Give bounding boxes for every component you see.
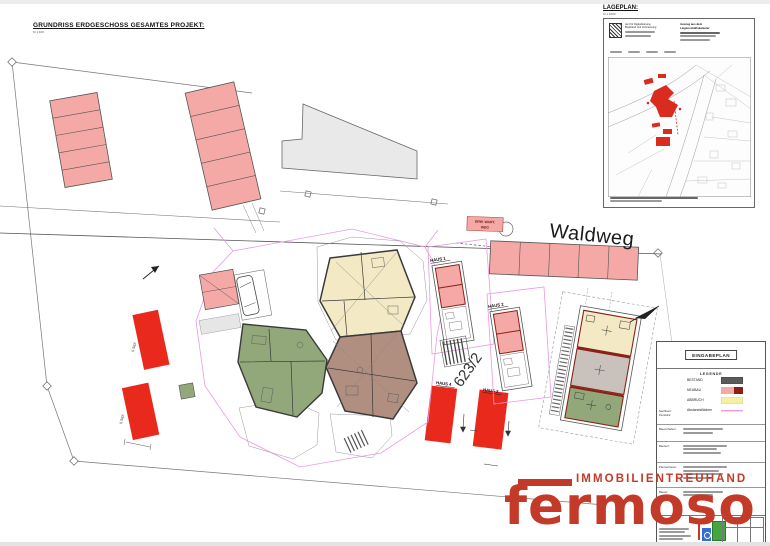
terrace-stairs — [347, 436, 367, 445]
legend-swatch-abstand — [721, 407, 743, 414]
sheet-edge-top — [0, 0, 770, 4]
unit-green — [238, 324, 327, 417]
existing-building — [282, 104, 417, 179]
sheet-edge-bottom — [0, 542, 770, 546]
legend-item-abstand: Abstandsflächen — [657, 406, 765, 416]
survey-office-text: Amt für Digitalisierung, Breitband und V… — [625, 23, 677, 43]
legend-section: LEGENDE BESTAND NEUBAU ABBRUCH — [657, 369, 765, 425]
svg-text:HAUS 2: HAUS 2 — [488, 302, 505, 309]
parking-count-label-upper: 5 Stpl. — [131, 341, 137, 352]
titleblock-row-1: Bauvorhaben: — [657, 425, 765, 442]
haus2-building: HAUS 2 — [488, 299, 532, 391]
lageplan-map-box: Amt für Digitalisierung, Breitband und V… — [603, 18, 755, 208]
legend-swatch-neubau — [721, 387, 743, 394]
north-flag-icon — [630, 306, 659, 322]
parking-group-mid — [185, 82, 261, 210]
central-building-cluster — [179, 237, 427, 459]
lageplan-meta-row — [610, 51, 676, 53]
plan-sheet: ERW. WART. WEG 5 Stpl. 5 Stpl. HAUS 4 HA… — [0, 0, 770, 546]
haus3-footprint — [473, 390, 509, 450]
svg-text:HAUS 1: HAUS 1 — [430, 256, 447, 263]
north-arrow-icon — [143, 266, 159, 279]
red-parking-upper — [132, 310, 169, 370]
haus1-label: HAUS 1 — [430, 255, 451, 263]
dimension-ticks — [124, 439, 151, 450]
parcel-number-label: 623/2 — [450, 350, 485, 391]
fermoso-watermark: IMMOBILIENTREUHAND fermoso — [500, 468, 770, 543]
shelter-label-line1: ERW. WART. — [475, 220, 496, 225]
lageplan-title: LAGEPLAN: — [603, 5, 763, 11]
plan-type-box: EINGABEPLAN — [685, 350, 737, 360]
right-building — [549, 304, 642, 431]
titleblock-row-2: Bauherr: — [657, 442, 765, 464]
brand-wordmark: fermoso — [504, 480, 756, 533]
survey-office-seal-icon — [609, 23, 622, 38]
page-title: GRUNDRISS ERDGESCHOSS GESAMTES PROJEKT: — [33, 22, 204, 29]
page-scale: M 1:100 — [33, 30, 204, 34]
legend-side-note: Nachbarn: Flurstück — [659, 410, 672, 418]
lageplan-footer — [610, 195, 740, 204]
parking-group-left — [50, 93, 113, 188]
walkway-gray — [199, 314, 241, 335]
unit-cream — [320, 250, 415, 337]
legend-swatch-abbruch — [721, 397, 743, 404]
kataster-excerpt-text: Auszug aus dem Liegenschaftskataster — [680, 23, 750, 43]
haus1-building: HAUS 1 — [430, 253, 474, 345]
legend-item-abbruch: ABBRUCH — [657, 396, 765, 406]
legend-item-neubau: NEUBAU — [657, 386, 765, 396]
lageplan-scale: M 1:1000 — [603, 12, 763, 16]
plan-type-row: EINGABEPLAN — [657, 342, 765, 369]
haus4-footprint — [425, 386, 458, 444]
legend-item-bestand: BESTAND — [657, 376, 765, 386]
shelter-label-box: ERW. WART. WEG — [467, 216, 503, 231]
red-parking-lower — [122, 383, 159, 440]
drawing-title-block: GRUNDRISS ERDGESCHOSS GESAMTES PROJEKT: … — [33, 22, 204, 34]
lageplan-panel: LAGEPLAN: M 1:1000 Amt für Digitalisieru… — [603, 5, 763, 208]
garage-pink — [199, 269, 239, 309]
parking-count-label-lower: 5 Stpl. — [119, 413, 125, 424]
cadastral-map — [608, 57, 751, 197]
dashed-guides — [585, 288, 612, 310]
lageplan-header: Amt für Digitalisierung, Breitband und V… — [609, 23, 750, 43]
garden-shed-green — [179, 383, 195, 399]
legend-swatch-bestand — [721, 377, 743, 384]
shelter-label-line2: WEG — [481, 225, 490, 229]
